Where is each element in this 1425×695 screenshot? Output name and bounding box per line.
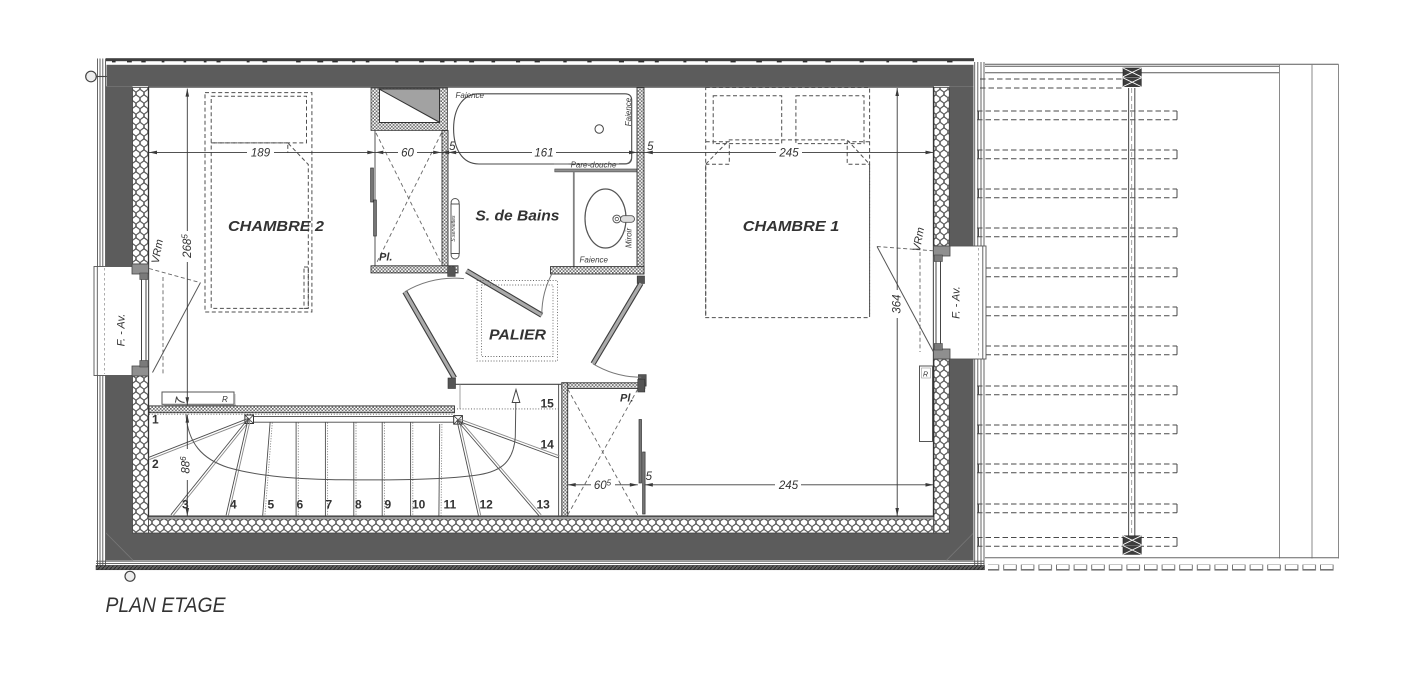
svg-text:F. - Av.: F. - Av.: [116, 314, 128, 347]
svg-text:364: 364: [892, 294, 904, 313]
svg-text:161: 161: [534, 148, 553, 160]
svg-text:245: 245: [778, 148, 799, 160]
svg-text:5: 5: [449, 141, 456, 153]
svg-text:Faience: Faience: [580, 256, 609, 265]
svg-text:5: 5: [647, 141, 654, 153]
svg-text:Faience: Faience: [456, 91, 485, 100]
svg-text:7: 7: [326, 498, 333, 512]
svg-text:245: 245: [778, 480, 799, 492]
svg-text:CHAMBRE 1: CHAMBRE 1: [743, 218, 840, 235]
svg-text:15: 15: [541, 397, 555, 411]
svg-text:1: 1: [152, 413, 159, 427]
svg-text:PLAN ETAGE: PLAN ETAGE: [106, 594, 227, 617]
svg-text:Pare-douche: Pare-douche: [571, 161, 617, 170]
svg-text:5: 5: [646, 471, 653, 483]
svg-text:10: 10: [412, 498, 426, 512]
svg-text:14: 14: [541, 438, 555, 452]
svg-text:13: 13: [537, 498, 551, 512]
svg-text:F. - Av.: F. - Av.: [951, 286, 963, 319]
svg-text:CHAMBRE 2: CHAMBRE 2: [228, 218, 325, 235]
svg-text:189: 189: [251, 148, 271, 160]
svg-text:60: 60: [401, 148, 414, 160]
svg-text:11: 11: [444, 498, 457, 512]
svg-text:Pl.: Pl.: [379, 252, 392, 264]
svg-text:S.serviettes: S.serviettes: [451, 215, 457, 242]
svg-text:6: 6: [297, 498, 304, 512]
svg-text:PALIER: PALIER: [489, 327, 546, 344]
svg-text:R: R: [222, 395, 228, 404]
svg-text:Miroir: Miroir: [625, 228, 634, 248]
svg-text:12: 12: [480, 498, 494, 512]
svg-text:Faience: Faience: [624, 97, 633, 126]
svg-text:2: 2: [152, 457, 159, 471]
svg-text:8: 8: [355, 498, 362, 512]
svg-text:9: 9: [385, 498, 392, 512]
svg-text:5: 5: [268, 498, 275, 512]
svg-text:R: R: [923, 372, 928, 379]
svg-text:S. de Bains: S. de Bains: [475, 208, 559, 225]
svg-text:Pl.: Pl.: [620, 393, 633, 405]
svg-text:4: 4: [230, 498, 237, 512]
